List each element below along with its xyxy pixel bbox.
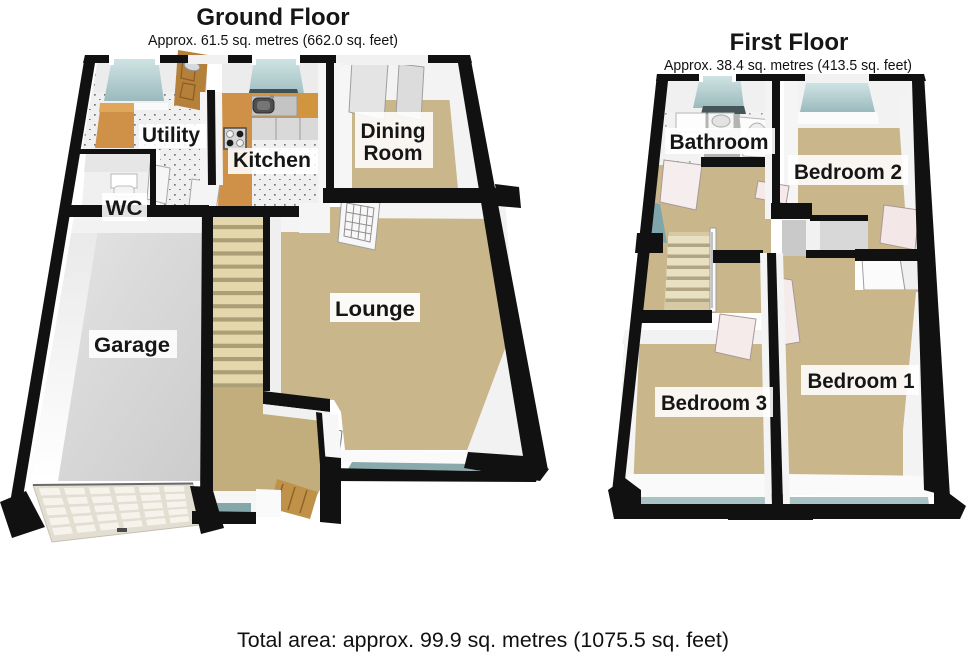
svg-text:Lounge: Lounge [335,298,415,321]
svg-text:Bedroom 3: Bedroom 3 [661,392,767,415]
svg-text:Total area: approx. 99.9 sq. m: Total area: approx. 99.9 sq. metres (107… [237,629,729,652]
svg-text:Dining: Dining [361,120,426,143]
svg-text:Room: Room [364,142,423,165]
svg-text:Bathroom: Bathroom [670,131,769,154]
svg-text:Bedroom 1: Bedroom 1 [808,370,915,393]
svg-text:Garage: Garage [94,334,170,357]
svg-text:Bedroom 2: Bedroom 2 [794,161,902,184]
svg-text:Approx. 38.4 sq. metres (413.5: Approx. 38.4 sq. metres (413.5 sq. feet) [664,58,912,74]
svg-text:Approx. 61.5 sq. metres (662.0: Approx. 61.5 sq. metres (662.0 sq. feet) [148,33,398,49]
svg-text:Ground Floor: Ground Floor [196,4,349,31]
svg-text:Kitchen: Kitchen [233,149,311,172]
svg-text:First Floor: First Floor [730,29,849,56]
svg-text:Utility: Utility [142,124,200,147]
svg-text:WC: WC [106,197,143,220]
